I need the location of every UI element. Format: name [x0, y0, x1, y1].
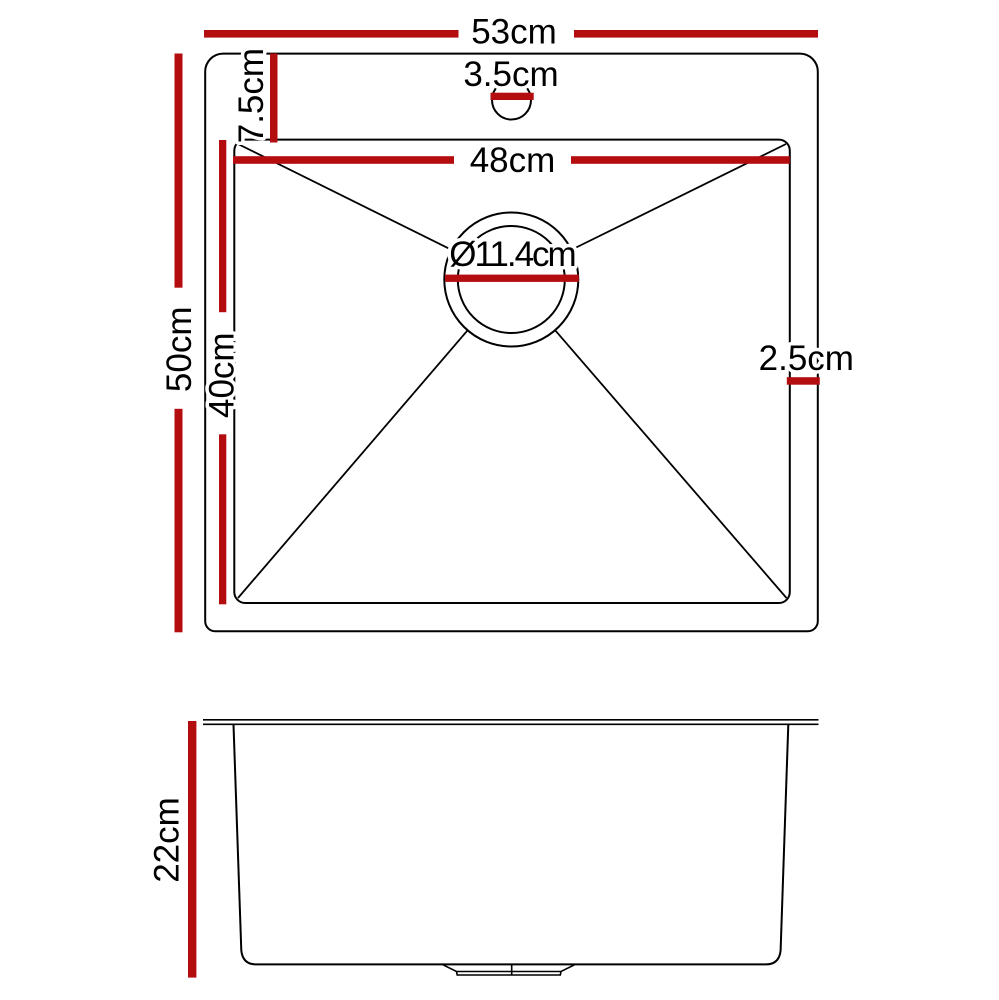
- svg-text:7.5cm: 7.5cm: [232, 48, 271, 143]
- svg-text:3.5cm: 3.5cm: [463, 55, 558, 94]
- svg-text:2.5cm: 2.5cm: [759, 339, 854, 378]
- svg-text:53cm: 53cm: [471, 13, 557, 52]
- svg-text:22cm: 22cm: [147, 797, 186, 883]
- svg-text:Ø11.4cm: Ø11.4cm: [449, 235, 574, 274]
- svg-text:48cm: 48cm: [470, 141, 556, 180]
- svg-text:50cm: 50cm: [160, 307, 199, 393]
- svg-text:40cm: 40cm: [202, 332, 241, 418]
